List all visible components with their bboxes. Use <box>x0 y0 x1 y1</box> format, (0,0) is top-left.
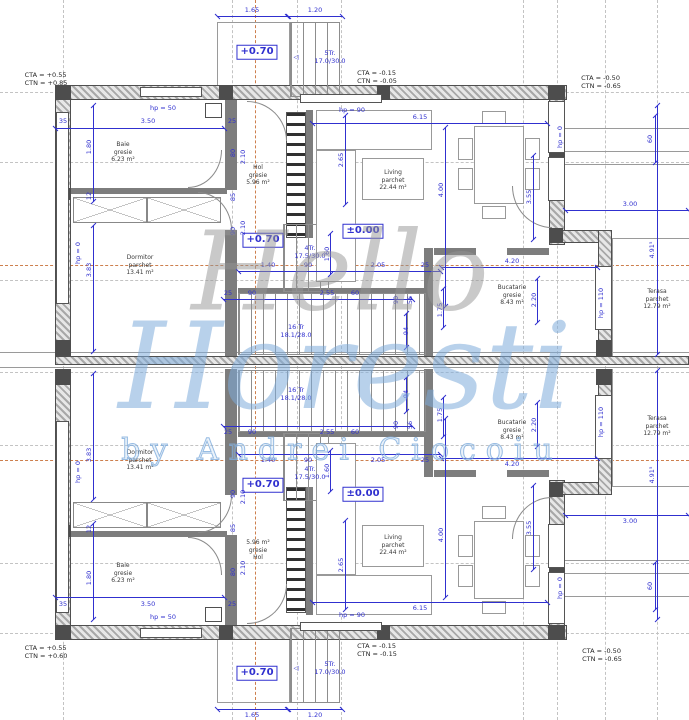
window <box>300 622 382 631</box>
dimension-label: 1.65 <box>245 6 259 14</box>
elevation-marker: ±0.00 <box>342 487 383 502</box>
line <box>612 238 689 239</box>
dimension-line <box>657 370 658 620</box>
dimension-line <box>565 515 689 516</box>
interior-wall <box>225 100 237 190</box>
dimension-label: 60 <box>646 135 654 143</box>
wall-pier <box>219 85 233 100</box>
dimension-line <box>288 709 343 710</box>
dimension-label: 35 <box>59 117 67 125</box>
line <box>612 369 613 487</box>
line <box>565 596 689 597</box>
window <box>56 112 69 304</box>
dimension-line <box>93 105 94 202</box>
furniture <box>458 138 473 160</box>
level-label: CTA = +0.55 CTN = +0.60 <box>25 644 68 660</box>
elevation-marker: +0.70 <box>242 478 283 493</box>
room-label: Dormitor parchet 13.41 m² <box>126 254 153 277</box>
dimension-label: 1.80 <box>85 140 93 154</box>
room-label: 5.96 m² gresie Hol <box>246 539 270 562</box>
stair-flight <box>286 487 306 613</box>
wall-pier <box>548 625 565 640</box>
window <box>300 94 382 103</box>
shaft <box>205 607 222 622</box>
dimension-label: 2.10 <box>239 150 247 164</box>
interior-wall <box>306 487 313 615</box>
wardrobe <box>73 197 147 223</box>
dimension-label: 4.91⁵ <box>648 466 656 483</box>
dimension-label: 2.10 <box>239 490 247 504</box>
level-label: CTA = -0.15 CTN = -0.15 <box>357 642 397 658</box>
dimension-label: 90 <box>229 490 237 498</box>
dimension-label: 12 <box>85 525 93 533</box>
watermark-wm3: by Andrei Ciocoiu <box>121 431 563 469</box>
interior-wall <box>225 535 237 625</box>
dimension-label: 3.55 <box>525 521 533 535</box>
line <box>565 164 689 165</box>
dimension-label: 3.50 <box>141 117 155 125</box>
dimension-label: 80 <box>229 149 237 157</box>
dimension-label: hp = 0 <box>74 242 82 264</box>
dimension-line <box>93 523 94 620</box>
line <box>612 238 613 356</box>
dimension-label: 6.15 <box>413 113 427 121</box>
door-arc <box>247 584 287 624</box>
room-label: Hol gresie 5.96 m² <box>246 164 270 187</box>
dimension-label: 3.83 <box>85 263 93 277</box>
dimension-label: hp = 90 <box>339 106 365 114</box>
dimension-label: 12 <box>85 192 93 200</box>
door-arc <box>247 101 287 141</box>
stair-label: 5Tr. 17.0/30.0 <box>314 660 345 676</box>
watermark-wm2: Horesti <box>118 293 571 443</box>
level-label: CTA = -0.50 CTN = -0.65 <box>581 74 621 90</box>
dimension-line <box>93 373 94 500</box>
dimension-label: 85 <box>229 524 237 532</box>
dimension-line <box>345 520 346 610</box>
dimension-label: 2.65 <box>337 558 345 572</box>
dimension-label: 3.55 <box>525 190 533 204</box>
dimension-line <box>655 562 656 610</box>
wall-pier <box>548 85 565 100</box>
stair-label: 5Tr. 17.0/30.0 <box>314 49 345 65</box>
door-arc <box>198 495 232 533</box>
interior-wall <box>434 470 476 477</box>
dimension-label: hp = 90 <box>339 611 365 619</box>
dimension-label: 80 <box>229 568 237 576</box>
dimension-label: hp = 50 <box>150 104 176 112</box>
dimension-line <box>55 128 225 129</box>
stair-label: ◁ <box>294 664 299 672</box>
window <box>56 421 69 613</box>
room-label: Baie gresie 6.23 m² <box>111 562 135 585</box>
elevation-marker: +0.70 <box>236 666 277 681</box>
dimension-label: 3.50 <box>141 600 155 608</box>
dimension-label: 6.15 <box>413 604 427 612</box>
dimension-line <box>217 16 288 17</box>
wall-pier <box>55 85 71 100</box>
wall-pier <box>55 370 71 385</box>
interior-wall <box>507 248 549 255</box>
dimension-label: hp = 0 <box>74 461 82 483</box>
dimension-line <box>655 115 656 163</box>
line <box>565 560 689 561</box>
room-label: Terasa parchet 12.79 m² <box>643 288 670 311</box>
room-label: Terasa parchet 12.79 m² <box>643 415 670 438</box>
line <box>565 128 689 129</box>
level-label: CTA = +0.55 CTN = +0.85 <box>25 71 68 87</box>
line <box>612 486 689 487</box>
dimension-line <box>217 709 288 710</box>
dimension-line <box>657 105 658 355</box>
wall-pier <box>596 340 612 356</box>
dimension-label: 4.20 <box>505 257 519 265</box>
dimension-label: 25 <box>228 117 236 125</box>
dimension-label: hp = 110 <box>597 407 605 437</box>
dimension-label: 3.83 <box>85 448 93 462</box>
dimension-label: 1.20 <box>308 6 322 14</box>
dimension-line <box>312 602 548 603</box>
wall-pier <box>55 340 71 355</box>
wall-pier <box>219 625 233 640</box>
dimension-label: 1.80 <box>85 571 93 585</box>
furniture <box>458 565 473 587</box>
furniture <box>458 168 473 190</box>
dimension-label: 2.10 <box>239 561 247 575</box>
level-label: CTA = -0.50 CTN = -0.65 <box>582 647 622 663</box>
dimension-label: 2.65 <box>337 153 345 167</box>
window <box>548 157 565 201</box>
dimension-label: 3.00 <box>623 200 637 208</box>
dimension-label: hp = 110 <box>597 288 605 318</box>
dimension-line <box>312 123 548 124</box>
interior-wall <box>507 470 549 477</box>
floor-plan: CTA = +0.55 CTN = +0.85CTA = -0.15 CTN =… <box>0 0 689 720</box>
window <box>548 524 565 568</box>
door-arc <box>188 150 222 188</box>
dimension-label: 25 <box>228 600 236 608</box>
dimension-label: 60 <box>646 582 654 590</box>
window <box>140 628 202 638</box>
stair-label: ◁ <box>294 53 299 61</box>
level-label: CTA = -0.15 CTN = -0.05 <box>357 69 397 85</box>
dimension-line <box>288 16 343 17</box>
dimension-line <box>533 485 534 570</box>
line <box>565 573 689 574</box>
wall-pier <box>55 625 71 640</box>
dimension-label: 35 <box>59 600 67 608</box>
dimension-label: 4.91⁵ <box>648 241 656 258</box>
dimension-label: 3.00 <box>623 517 637 525</box>
wall-pier <box>549 482 563 497</box>
dimension-label: 1.20 <box>308 711 322 719</box>
line <box>565 151 689 152</box>
room-label: Living parchet 22.44 m² <box>379 534 406 557</box>
dimension-label: 4.00 <box>437 528 445 542</box>
furniture <box>482 506 506 519</box>
dimension-line <box>55 597 225 598</box>
dimension-label: 85 <box>229 193 237 201</box>
dimension-line <box>565 210 689 211</box>
dimension-label: hp = 0 <box>556 577 564 599</box>
furniture <box>458 535 473 557</box>
window <box>140 87 202 97</box>
dimension-line <box>533 155 534 240</box>
room-label: Baie gresie 6.23 m² <box>111 141 135 164</box>
wall-pier <box>549 228 563 243</box>
door-arc <box>188 537 222 575</box>
dimension-label: 4.00 <box>437 183 445 197</box>
dimension-line <box>93 225 94 352</box>
shaft <box>205 103 222 118</box>
dimension-line <box>345 115 346 205</box>
wall-pier <box>596 369 612 385</box>
room-label: Living parchet 22.44 m² <box>379 169 406 192</box>
dimension-label: hp = 0 <box>556 126 564 148</box>
dimension-label: hp = 50 <box>150 613 176 621</box>
elevation-marker: +0.70 <box>236 45 277 60</box>
dimension-label: 1.65 <box>245 711 259 719</box>
